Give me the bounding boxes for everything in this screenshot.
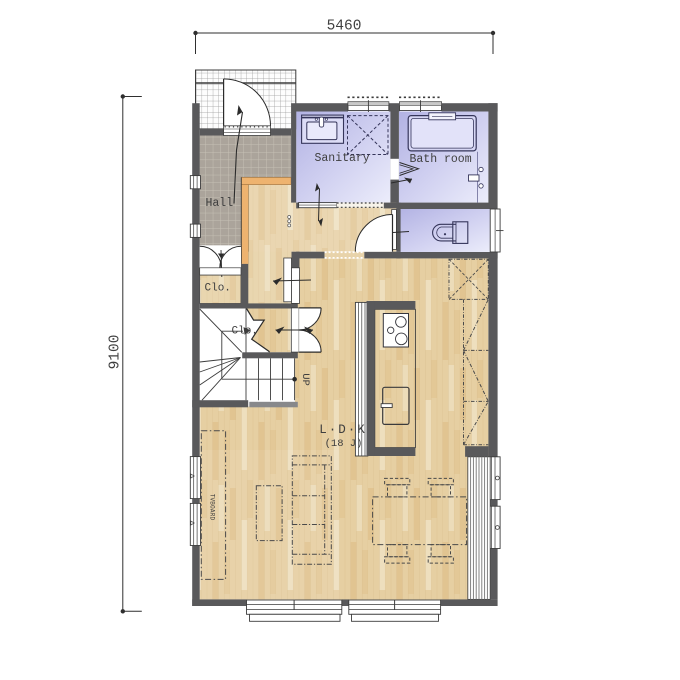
svg-text:Sanitary: Sanitary xyxy=(315,152,370,165)
svg-text:9100: 9100 xyxy=(108,335,124,370)
svg-text:Clo.: Clo. xyxy=(205,283,231,295)
svg-text:UP: UP xyxy=(299,373,311,386)
svg-text:5460: 5460 xyxy=(327,19,362,35)
svg-text:Hall: Hall xyxy=(206,197,234,210)
svg-text:Clo.: Clo. xyxy=(232,326,258,338)
svg-text:L·D·K: L·D·K xyxy=(319,423,367,437)
svg-text:(18 J): (18 J) xyxy=(325,438,363,450)
svg-text:Bath room: Bath room xyxy=(410,153,472,166)
svg-text:TVBOARD: TVBOARD xyxy=(209,494,216,521)
